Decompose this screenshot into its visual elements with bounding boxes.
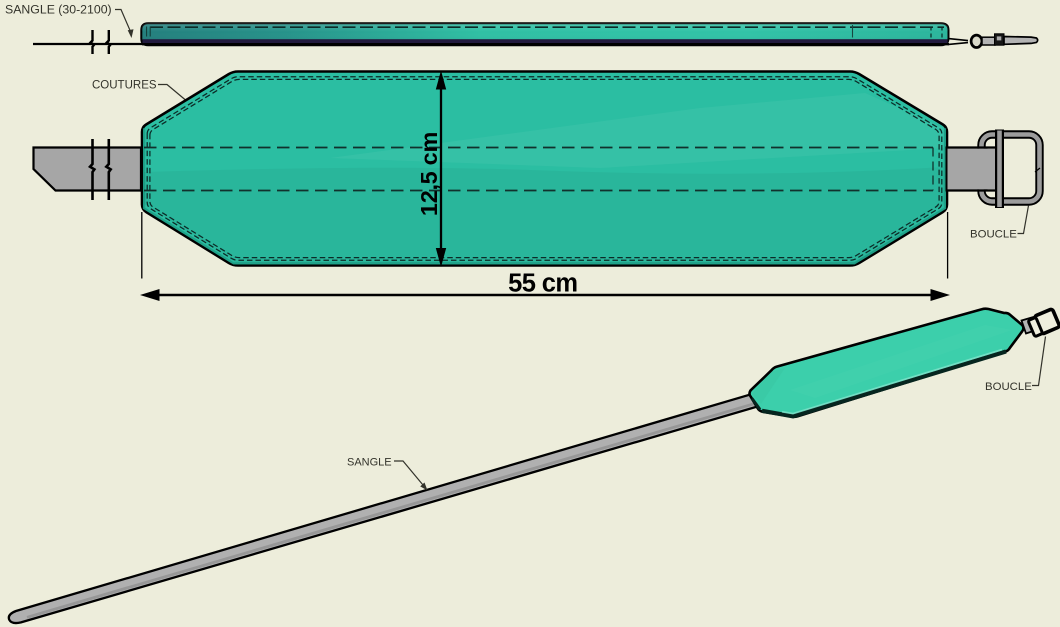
svg-text:SANGLE (30-2100): SANGLE (30-2100) <box>5 3 112 17</box>
svg-text:BOUCLE: BOUCLE <box>985 381 1032 393</box>
svg-text:55 cm: 55 cm <box>508 270 577 298</box>
svg-text:SANGLE: SANGLE <box>347 457 392 469</box>
svg-text:12,5 cm: 12,5 cm <box>416 132 442 216</box>
svg-text:COUTURES: COUTURES <box>92 80 157 92</box>
svg-text:BOUCLE: BOUCLE <box>970 229 1017 241</box>
